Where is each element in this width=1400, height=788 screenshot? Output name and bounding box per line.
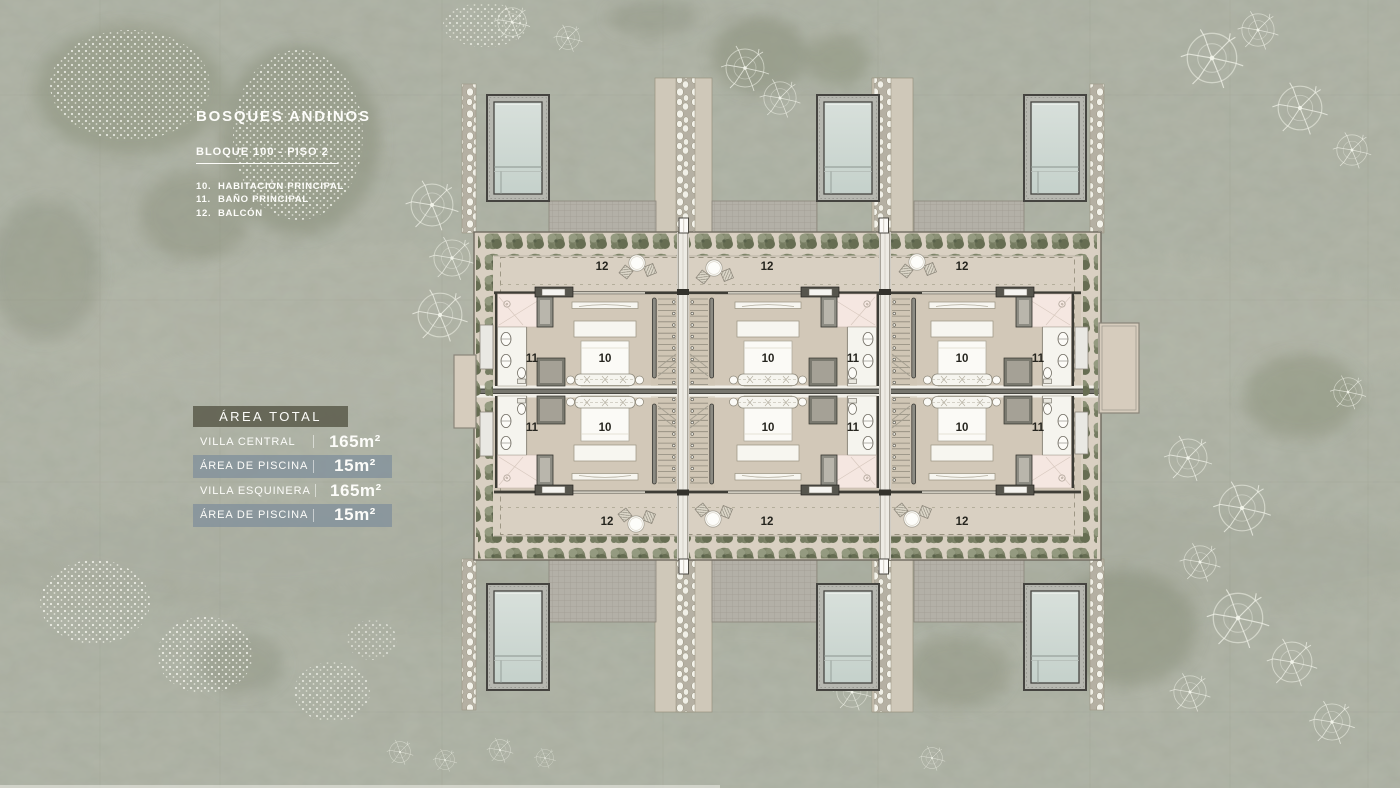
area-row-value: 165m² [320,481,392,501]
room-label-bedroom: 10 [956,353,969,365]
area-row-piscina-2: ÁREA DE PISCINA 15m² [193,504,392,527]
area-table: ÁREA TOTAL VILLA CENTRAL 165m² ÁREA DE P… [193,406,392,528]
pool-bottom-left [487,584,549,690]
divider [313,460,314,473]
divider [315,484,316,497]
legend-number: 11. [196,193,218,206]
area-row-value: 15m² [318,456,392,476]
area-row-label: ÁREA DE PISCINA [200,460,309,472]
project-title: BOSQUES ANDINOS [196,108,371,125]
room-label-balcony: 12 [761,516,774,528]
building-block [454,218,1139,574]
room-label-bathroom: 11 [1032,353,1045,365]
legend-item-balcony: 12.BALCÓN [196,207,371,220]
floor-label: BLOQUE 100 - PISO 2 [196,146,338,164]
area-row-piscina-1: ÁREA DE PISCINA 15m² [193,455,392,478]
area-row-value: 15m² [318,505,392,525]
pool-top-left [487,95,549,201]
legend-number: 10. [196,180,218,193]
legend-label: BALCÓN [218,208,263,219]
legend-label: HABITACIÓN PRINCIPAL [218,181,344,192]
legend-item-bathroom: 11.BAÑO PRINCIPAL [196,193,371,206]
room-label-balcony: 12 [601,516,614,528]
title-block: BOSQUES ANDINOS BLOQUE 100 - PISO 2 10.H… [196,108,371,220]
room-label-bathroom: 11 [526,422,539,434]
room-label-bedroom: 10 [762,422,775,434]
room-label-bathroom: 11 [847,353,860,365]
room-label-balcony: 12 [761,261,774,273]
legend-label: BAÑO PRINCIPAL [218,194,309,205]
room-label-balcony: 12 [596,261,609,273]
area-row-label: VILLA ESQUINERA [200,485,311,497]
room-label-bedroom: 10 [956,422,969,434]
pool-bottom-center [817,584,879,690]
room-label-bedroom: 10 [762,353,775,365]
area-row-villa-central: VILLA CENTRAL 165m² [193,430,392,453]
room-label-bedroom: 10 [599,353,612,365]
site-plan-sheet: 12 12 12 12 12 12 10 10 10 10 10 10 11 1… [0,0,1400,788]
area-row-label: ÁREA DE PISCINA [200,509,309,521]
area-table-header: ÁREA TOTAL [193,406,348,427]
pool-bottom-right [1024,584,1086,690]
room-label-bathroom: 11 [1032,422,1045,434]
divider [313,509,314,522]
room-label-bathroom: 11 [847,422,860,434]
area-row-value: 165m² [318,432,392,452]
legend-item-bedroom: 10.HABITACIÓN PRINCIPAL [196,180,371,193]
divider [313,435,314,448]
room-label-balcony: 12 [956,516,969,528]
pool-top-center [817,95,879,201]
room-label-bedroom: 10 [599,422,612,434]
room-label-bathroom: 11 [526,353,539,365]
legend-number: 12. [196,207,218,220]
room-legend: 10.HABITACIÓN PRINCIPAL 11.BAÑO PRINCIPA… [196,180,371,220]
pool-top-right [1024,95,1086,201]
area-row-label: VILLA CENTRAL [200,436,309,448]
area-row-villa-esquinera: VILLA ESQUINERA 165m² [193,479,392,502]
room-label-balcony: 12 [956,261,969,273]
